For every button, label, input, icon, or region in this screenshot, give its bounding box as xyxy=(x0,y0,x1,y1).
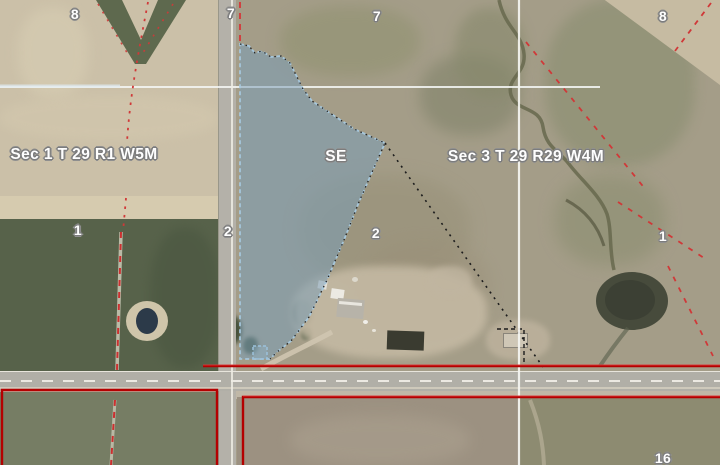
creek-dark-bend xyxy=(566,200,604,246)
section-number-16: 16 xyxy=(655,450,671,465)
dugout-pond xyxy=(136,308,158,334)
red-boundary-south-parcel xyxy=(243,397,720,465)
trail-southeast-field xyxy=(530,400,544,465)
parcel-tip-marker xyxy=(253,346,267,359)
section-number-1-w: 1 xyxy=(74,222,82,238)
highlighted-parcel-se[interactable] xyxy=(240,44,385,359)
map-overlay xyxy=(0,0,720,465)
section-label-west: Sec 1 T 29 R1 W5M xyxy=(10,146,157,164)
pond-east-core xyxy=(605,280,655,320)
map-viewport[interactable]: 8 7 7 8 Sec 1 T 29 R1 W5M SE Sec 3 T 29 … xyxy=(0,0,720,465)
section-number-2-road: 2 xyxy=(224,223,232,239)
section-label-east: Sec 3 T 29 R29 W4M xyxy=(448,148,604,166)
trail-red-dashed xyxy=(668,266,713,356)
pond-outflow xyxy=(600,328,628,366)
section-number-8-ne: 8 xyxy=(659,8,667,24)
trail-red-dashed xyxy=(672,3,711,55)
red-boundary-southwest-parcel xyxy=(2,390,217,465)
quarter-label-se: SE xyxy=(325,148,346,166)
tree-line-v xyxy=(96,0,186,64)
trail-red-dashed xyxy=(526,42,646,190)
trail-white-underlay xyxy=(111,400,115,465)
section-number-7-road: 7 xyxy=(227,5,235,21)
section-number-2-mid: 2 xyxy=(372,225,380,241)
trail-red-dashed xyxy=(123,198,126,232)
trail-white-underlay xyxy=(117,232,121,370)
section-number-1-e: 1 xyxy=(659,228,667,244)
section-number-7-mid: 7 xyxy=(373,8,381,24)
section-number-8-nw: 8 xyxy=(71,6,79,22)
